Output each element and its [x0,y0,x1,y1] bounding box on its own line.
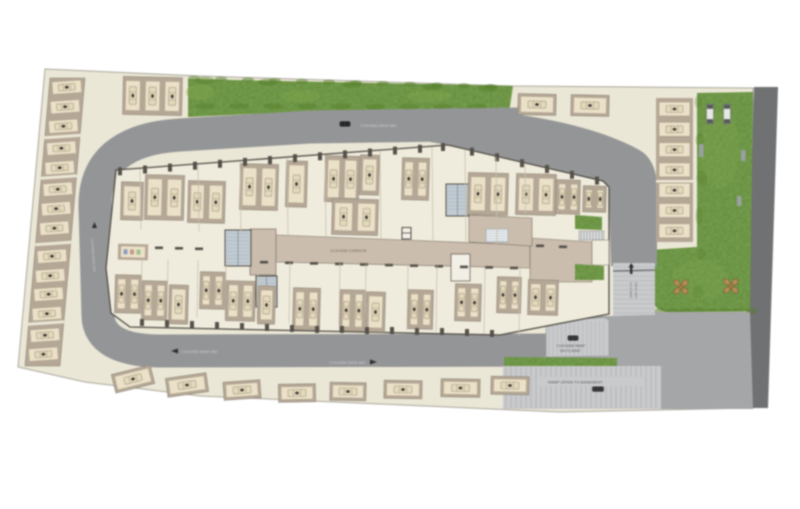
svg-text:6.0 M WIDE: 6.0 M WIDE [629,282,633,298]
svg-text:3.6 M WIDE CORRIDOR: 3.6 M WIDE CORRIDOR [330,249,367,253]
svg-text:7.5 M WIDE DRIVE WAY: 7.5 M WIDE DRIVE WAY [181,350,219,354]
svg-text:DN TO BSMT: DN TO BSMT [560,349,581,353]
svg-text:7.5 M WIDE RAMP: 7.5 M WIDE RAMP [556,344,586,348]
svg-text:RAMP UP/DN TO BASEMENT: RAMP UP/DN TO BASEMENT [548,380,603,385]
svg-text:7.5 M WIDE DRIVE WAY: 7.5 M WIDE DRIVE WAY [329,361,367,365]
svg-text:DRIVE WAY: DRIVE WAY [634,282,638,299]
svg-text:7.5 M WIDE DRIVE WAY: 7.5 M WIDE DRIVE WAY [360,124,398,128]
